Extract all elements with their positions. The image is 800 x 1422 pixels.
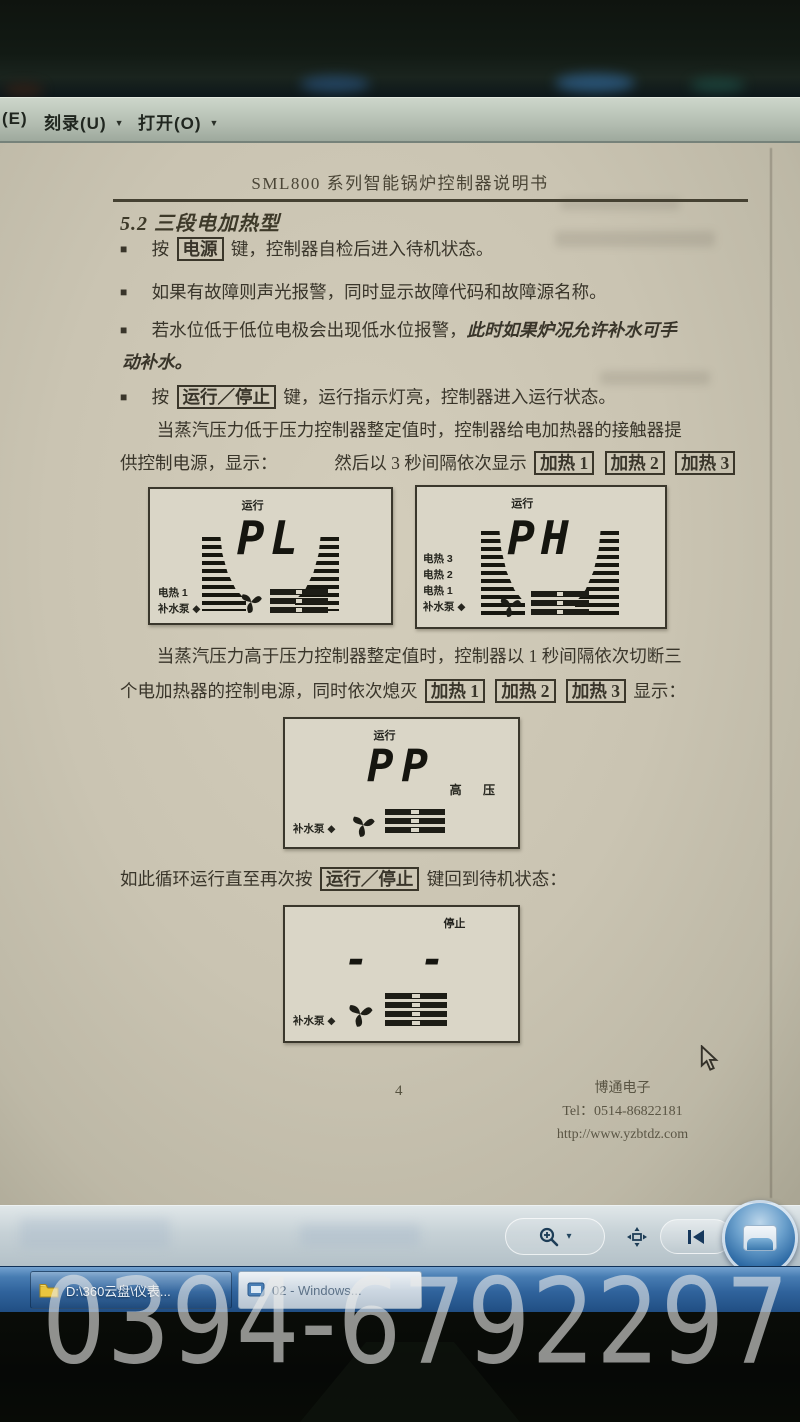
bullet-fault-alarm: ■ 如果有故障则声光报警，同时显示故障代码和故障源名称。 <box>120 281 760 304</box>
indicator-heater2: 电热 2 <box>423 567 466 583</box>
indicator-pump: 补水泵 ◆ <box>293 821 336 837</box>
company-url: http://www.yzbtdz.com <box>515 1123 730 1146</box>
lcd-value: PL <box>150 511 391 565</box>
screen-glare <box>4 84 44 96</box>
fan-icon <box>345 999 375 1029</box>
run-stop-key-label: 运行／停止 <box>320 867 420 891</box>
para-text: 如此循环运行直至再次按 <box>120 869 313 889</box>
bullet-marker: ■ <box>120 323 127 337</box>
document-title: SML800 系列智能锅炉控制器说明书 <box>0 169 800 194</box>
photo-viewer-icon <box>247 1281 265 1299</box>
heater-stack-icon <box>270 589 328 613</box>
menu-bar: (E) 刻录(U) ▼ 打开(O) ▼ <box>0 97 800 143</box>
indicator-pump: 补水泵 ◆ <box>293 1013 336 1029</box>
taskbar: D:\360云盘\仪表... 02 - Windows... <box>0 1266 800 1312</box>
para2-line1: 当蒸汽压力高于压力控制器整定值时，控制器以 1 秒间隔依次切断三 <box>120 645 760 668</box>
para1-line2: 供控制电源，显示： 然后以 3 秒间隔依次显示 加热 1 加热 2 加热 3 <box>120 451 760 475</box>
menu-item-label: 打开(O) <box>138 109 202 134</box>
bullet-marker: ■ <box>120 390 127 404</box>
bullet-text: 键，控制器自检后进入待机状态。 <box>231 239 494 259</box>
para-text: 个电加热器的控制电源，同时依次熄灭 <box>120 681 418 701</box>
company-tel: Tel：0514-86822181 <box>515 1100 730 1123</box>
bullet-run-stop-key: ■ 按 运行／停止 键，运行指示灯亮，控制器进入运行状态。 <box>120 385 760 409</box>
run-stop-key-label: 运行／停止 <box>177 385 277 409</box>
bullet-low-water-cont: 动补水。 <box>122 351 762 374</box>
heat2-key-label: 加热 2 <box>605 451 665 475</box>
toolbar-reflection <box>300 1224 420 1246</box>
screen-glare <box>300 76 370 92</box>
slideshow-icon <box>743 1225 777 1251</box>
para-text: 显示： <box>633 681 686 701</box>
screen-glare <box>555 74 635 92</box>
menu-item-open[interactable]: 打开(O) ▼ <box>138 109 219 134</box>
taskbar-button-folder[interactable]: D:\360云盘\仪表... <box>30 1271 232 1309</box>
document-page: SML800 系列智能锅炉控制器说明书 5.2 三段电加热型 ■ 按 电源 键，… <box>0 143 800 1205</box>
lcd-figure-pp: 运行 PP 高 压 补水泵 ◆ <box>283 717 520 849</box>
company-name: 博通电子 <box>515 1077 730 1100</box>
indicator-pump: 补水泵 ◆ <box>423 599 466 615</box>
high-pressure-label: 高 压 <box>450 781 504 798</box>
lcd-figure-stop: 停止 - - 补水泵 ◆ <box>283 905 520 1043</box>
indicator-heater1: 电热 1 <box>158 585 201 601</box>
fit-to-window-button[interactable] <box>620 1221 654 1253</box>
para1-line1: 当蒸汽压力低于压力控制器整定值时，控制器给电加热器的接触器提 <box>120 419 760 442</box>
bullet-text-emphasis: 此时如果炉况允许补水可手 <box>467 320 677 340</box>
chevron-down-icon: ▾ <box>566 1231 571 1242</box>
folder-icon <box>39 1282 59 1299</box>
fan-icon <box>349 811 377 839</box>
desk-background <box>0 1312 800 1422</box>
menu-item-label: (E) <box>2 109 28 129</box>
menu-item-burn[interactable]: 刻录(U) ▼ <box>44 109 125 134</box>
bullet-text: 键，运行指示灯亮，控制器进入运行状态。 <box>283 387 616 407</box>
para3: 如此循环运行直至再次按 运行／停止 键回到待机状态： <box>120 867 760 891</box>
lcd-figure-ph: 运行 PH 电热 3 电热 2 电热 1 补水泵 ◆ <box>415 485 667 629</box>
menu-item-label: 刻录(U) <box>44 109 107 134</box>
heater-stack-icon <box>385 993 447 1026</box>
para-text: 键回到待机状态： <box>427 869 567 889</box>
previous-icon <box>685 1228 707 1246</box>
para2-line2: 个电加热器的控制电源，同时依次熄灭 加热 1 加热 2 加热 3 显示： <box>120 679 760 703</box>
power-key-label: 电源 <box>177 237 224 261</box>
fit-to-window-icon <box>625 1225 649 1249</box>
heater-stack-icon <box>385 809 445 833</box>
footer-company-block: 博通电子 Tel：0514-86822181 http://www.yzbtdz… <box>515 1077 730 1146</box>
heat3-key-label: 加热 3 <box>675 451 735 475</box>
heater-stack-icon <box>531 591 589 615</box>
page-number: 4 <box>395 1083 403 1100</box>
photo-viewer-toolbar: ▾ <box>0 1205 800 1266</box>
slideshow-button[interactable] <box>722 1200 798 1276</box>
screen-glare <box>690 78 745 92</box>
heat1-key-label: 加热 1 <box>425 679 485 703</box>
fan-icon <box>497 593 523 619</box>
taskbar-button-photo-viewer[interactable]: 02 - Windows... <box>238 1271 422 1309</box>
heat3-key-label: 加热 3 <box>566 679 626 703</box>
chevron-down-icon: ▼ <box>210 118 220 128</box>
bullet-power-key: ■ 按 电源 键，控制器自检后进入待机状态。 <box>120 237 760 261</box>
bullet-text: 按 <box>152 239 170 259</box>
monitor-bezel-top <box>0 0 800 97</box>
indicator-heater1: 电热 1 <box>423 583 466 599</box>
bullet-low-water: ■ 若水位低于低位电极会出现低水位报警，此时如果炉况允许补水可手 <box>120 319 760 342</box>
taskbar-button-label: 02 - Windows... <box>272 1283 362 1298</box>
indicator-pump: 补水泵 ◆ <box>158 601 201 617</box>
section-heading: 5.2 三段电加热型 <box>120 207 280 236</box>
bullet-text: 按 <box>152 387 170 407</box>
indicator-heater3: 电热 3 <box>423 551 466 567</box>
bullet-text: 若水位低于低位电极会出现低水位报警， <box>152 320 467 340</box>
bullet-marker: ■ <box>120 285 127 299</box>
chevron-down-icon: ▼ <box>115 118 125 128</box>
para-text: 然后以 3 秒间隔依次显示 <box>334 453 527 473</box>
photographed-monitor: (E) 刻录(U) ▼ 打开(O) ▼ SML800 系列智能锅炉控制器说明书 … <box>0 0 800 1422</box>
fan-icon <box>238 589 264 615</box>
zoom-control[interactable]: ▾ <box>505 1218 605 1255</box>
lcd-figure-pl: 运行 PL 电热 1 补水泵 ◆ <box>148 487 393 625</box>
mouse-cursor <box>698 1045 722 1071</box>
monitor-stand <box>300 1342 520 1422</box>
para-text: 供控制电源，显示： <box>120 453 278 473</box>
menu-item-partial[interactable]: (E) <box>2 109 28 129</box>
bullet-text: 如果有故障则声光报警，同时显示故障代码和故障源名称。 <box>152 282 607 302</box>
toolbar-reflection <box>20 1218 170 1248</box>
lcd-value: - - <box>285 937 518 983</box>
paper-crease <box>770 148 772 1198</box>
lcd-status-label: 运行 <box>511 495 533 511</box>
heat2-key-label: 加热 2 <box>495 679 555 703</box>
taskbar-button-label: D:\360云盘\仪表... <box>66 1281 171 1300</box>
heat1-key-label: 加热 1 <box>534 451 594 475</box>
zoom-magnifier-icon <box>538 1226 560 1248</box>
bullet-marker: ■ <box>120 242 127 256</box>
lcd-status-label: 停止 <box>443 915 465 931</box>
header-rule <box>113 199 748 202</box>
